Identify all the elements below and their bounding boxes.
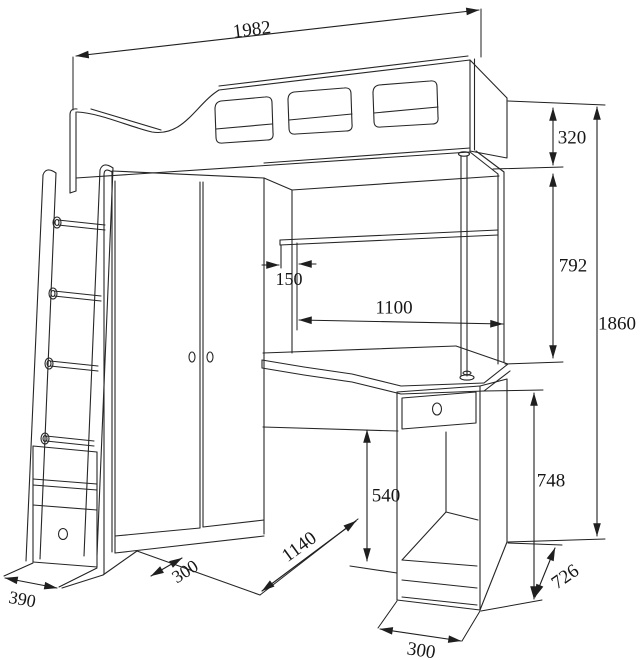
dimension-1100: 1100 xyxy=(299,297,503,324)
pedestal-drawer xyxy=(402,392,476,429)
wardrobe-left-door-handle xyxy=(189,352,195,362)
dimension-1860: 1860 xyxy=(508,101,636,542)
support-pole xyxy=(459,152,475,380)
dimension-540: 540 xyxy=(367,430,400,561)
dim-1140-label: 1140 xyxy=(278,528,321,567)
dim-150-label: 150 xyxy=(276,269,303,289)
bed-front-rail-top xyxy=(77,60,470,133)
dim-300-pedestal-label: 300 xyxy=(405,638,436,660)
wardrobe xyxy=(104,170,264,574)
dim-390-label: 390 xyxy=(7,587,37,611)
dimension-1140: 1140 xyxy=(262,521,356,591)
pedestal-plinth xyxy=(402,580,477,588)
dimension-300-wardrobe: 300 xyxy=(151,556,202,587)
furniture-dimension-drawing: 1982 320 792 1860 150 1100 540 748 xyxy=(0,0,641,660)
rail-cutout xyxy=(373,81,438,127)
dimension-1982: 1982 xyxy=(73,9,481,110)
dim-726-label: 726 xyxy=(548,560,583,594)
dim-540-label: 540 xyxy=(372,485,401,506)
ladder-rungs xyxy=(41,217,105,446)
ladder-left-rail xyxy=(43,170,56,175)
technical-drawing-canvas: 1982 320 792 1860 150 1100 540 748 xyxy=(0,0,641,660)
desk xyxy=(262,346,510,431)
dim-792-label: 792 xyxy=(559,255,588,276)
bed-support-frame xyxy=(470,151,504,364)
dimension-300-pedestal: 300 xyxy=(378,601,480,660)
dim-748-label: 748 xyxy=(537,470,566,491)
desk-under-rail xyxy=(263,427,398,431)
dim-320-label: 320 xyxy=(558,127,587,148)
dim-300-wardrobe-label: 300 xyxy=(168,556,202,587)
dimension-150: 150 xyxy=(262,264,316,289)
rail-cutouts xyxy=(215,81,438,143)
bed-rail-bottom-edge xyxy=(76,152,470,178)
dimension-726: 726 xyxy=(508,543,583,597)
ladder-right-rail xyxy=(100,165,113,170)
dimension-792: 792 xyxy=(505,174,587,364)
dimension-390: 390 xyxy=(4,563,97,611)
ladder xyxy=(26,165,113,567)
rail-cutout xyxy=(215,97,273,143)
dim-1860-label: 1860 xyxy=(598,313,636,334)
desk-pedestal xyxy=(397,379,507,610)
rail-cutout xyxy=(288,88,352,134)
cabinet-drawer-handle xyxy=(59,529,68,540)
wall-shelf xyxy=(280,230,498,240)
drawer-handle xyxy=(433,403,442,415)
wardrobe-right-door-handle xyxy=(207,352,213,362)
wardrobe-base-edge xyxy=(115,536,264,553)
dim-1100-label: 1100 xyxy=(375,297,412,318)
dim-1982-label: 1982 xyxy=(232,17,272,42)
bed-side-panel xyxy=(470,60,507,158)
